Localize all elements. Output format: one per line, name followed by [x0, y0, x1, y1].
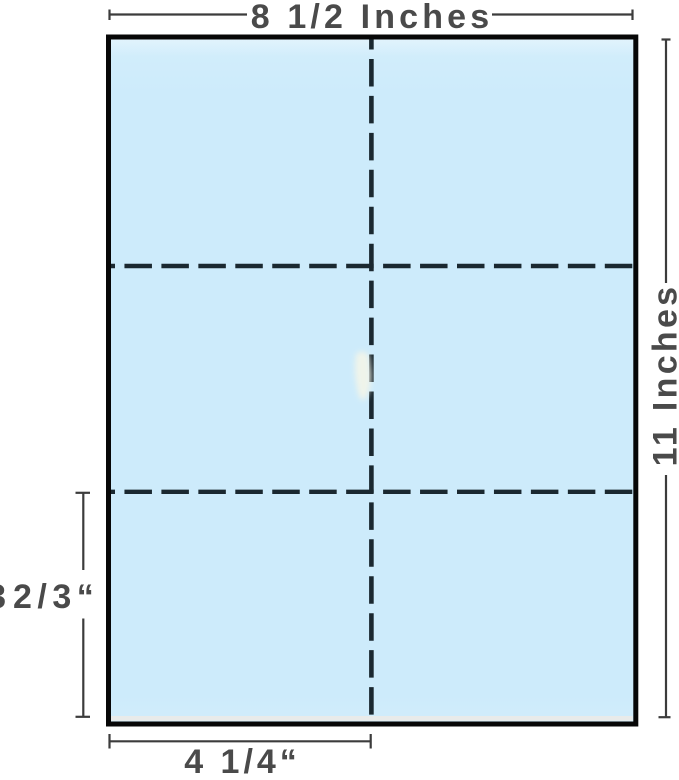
svg-text:4 1/4“: 4 1/4“: [184, 743, 301, 780]
svg-text:11 Inches: 11 Inches: [647, 284, 679, 467]
svg-text:3: 3: [0, 578, 6, 616]
svg-text:8 1/2 Inches: 8 1/2 Inches: [251, 0, 494, 36]
svg-text:2/3“: 2/3“: [13, 578, 99, 616]
